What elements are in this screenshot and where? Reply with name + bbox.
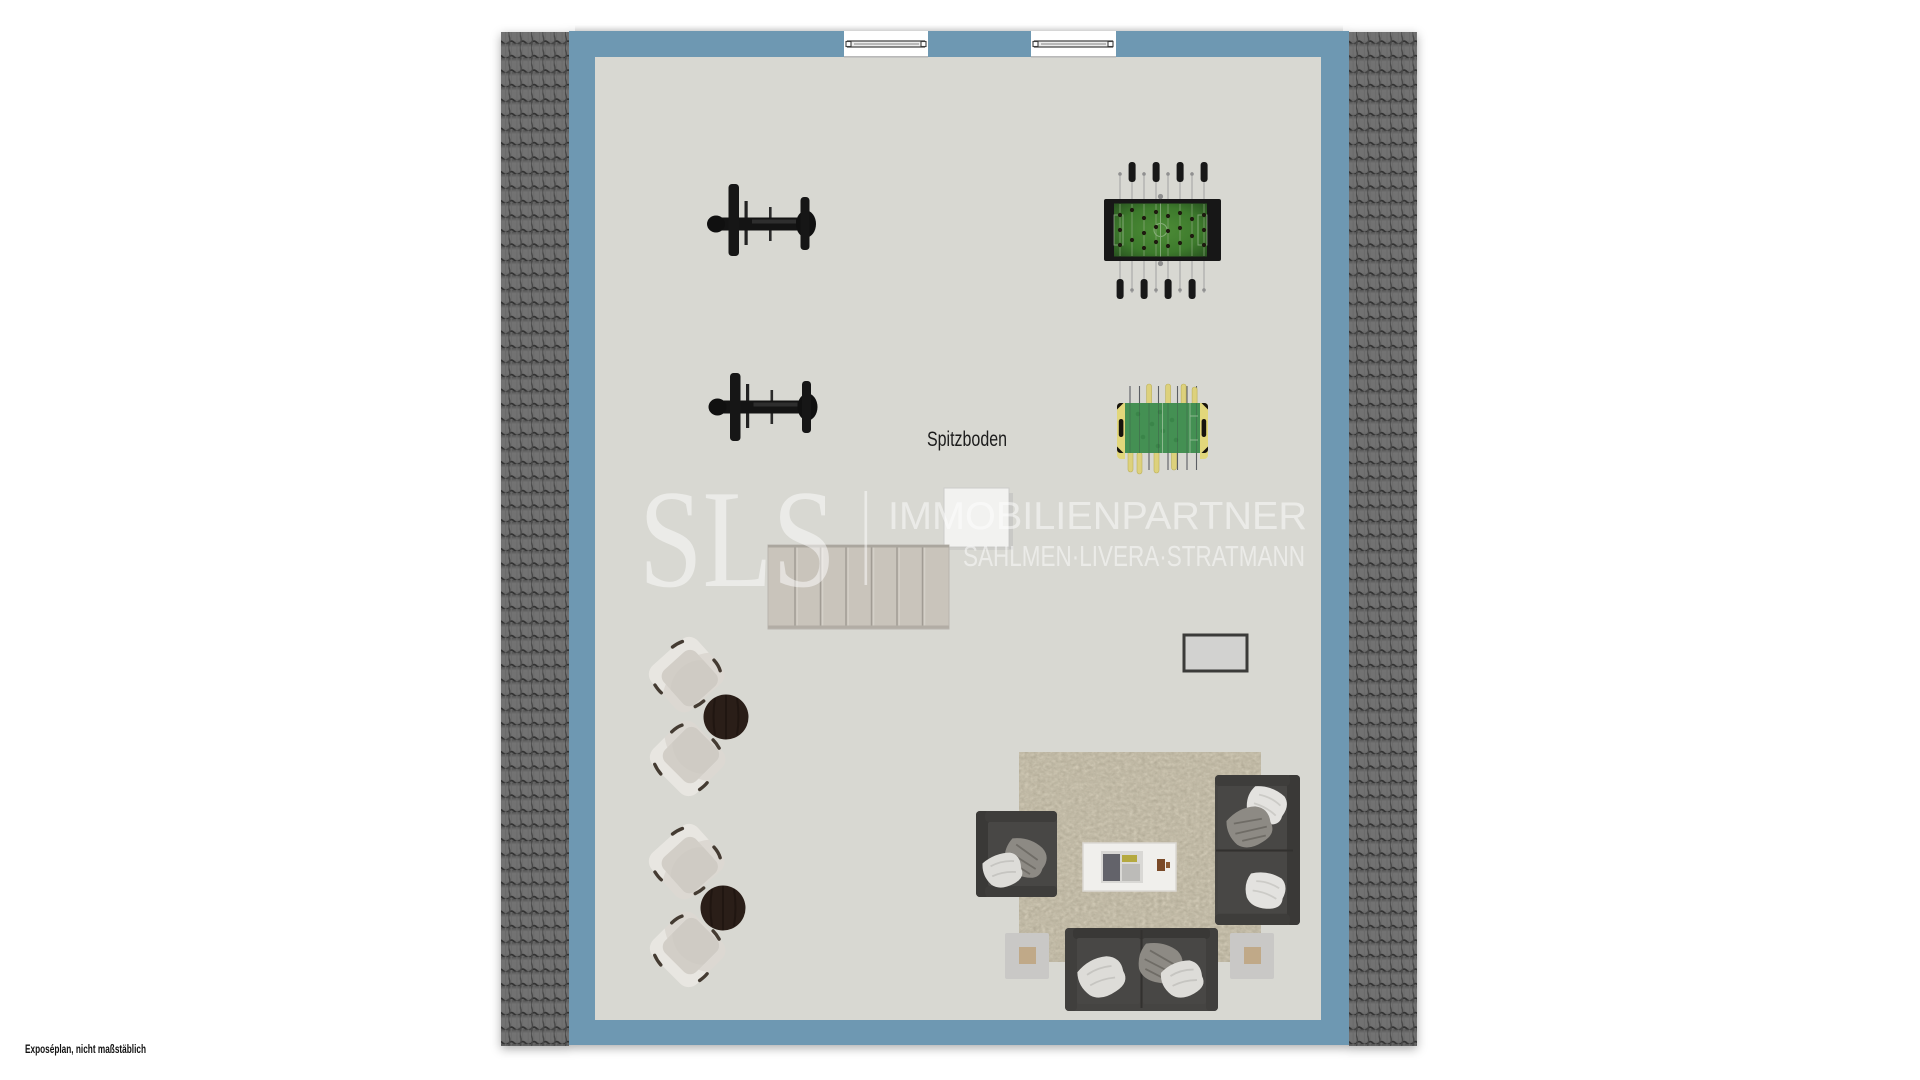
svg-text:SAHLMEN·LIVERA·STRATMANN: SAHLMEN·LIVERA·STRATMANN	[963, 541, 1305, 573]
svg-text:Exposéplan, nicht maßstäblich: Exposéplan, nicht maßstäblich	[25, 1044, 146, 1056]
svg-text:IMMOBILIENPARTNER: IMMOBILIENPARTNER	[888, 495, 1307, 538]
svg-text:Spitzboden: Spitzboden	[927, 428, 1007, 451]
svg-text:SLS: SLS	[639, 462, 836, 617]
